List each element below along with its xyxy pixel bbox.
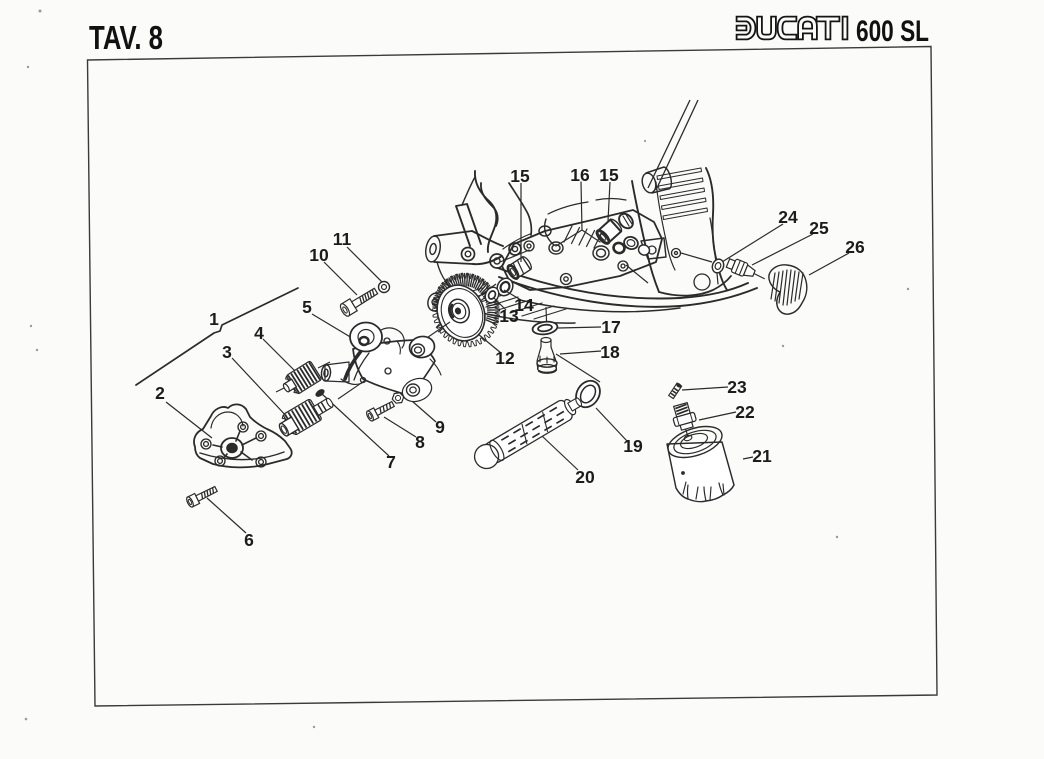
svg-text:TAV. 8: TAV. 8 bbox=[89, 19, 163, 56]
svg-text:25: 25 bbox=[809, 218, 829, 238]
svg-text:10: 10 bbox=[309, 245, 329, 265]
svg-text:2: 2 bbox=[155, 383, 165, 403]
svg-text:17: 17 bbox=[601, 317, 620, 337]
svg-text:23: 23 bbox=[727, 377, 747, 397]
svg-text:21: 21 bbox=[752, 446, 772, 466]
svg-text:15: 15 bbox=[510, 166, 530, 186]
svg-text:26: 26 bbox=[845, 237, 865, 257]
svg-text:12: 12 bbox=[495, 348, 515, 368]
svg-text:19: 19 bbox=[623, 436, 643, 456]
svg-text:18: 18 bbox=[600, 342, 620, 362]
svg-text:16: 16 bbox=[570, 165, 590, 185]
svg-text:1: 1 bbox=[209, 309, 219, 329]
svg-text:7: 7 bbox=[386, 452, 396, 472]
svg-text:15: 15 bbox=[599, 165, 619, 185]
svg-text:8: 8 bbox=[415, 432, 425, 452]
svg-text:20: 20 bbox=[575, 467, 595, 487]
svg-text:14: 14 bbox=[514, 295, 534, 315]
svg-text:22: 22 bbox=[735, 402, 755, 422]
svg-text:3: 3 bbox=[222, 342, 232, 362]
svg-text:5: 5 bbox=[302, 297, 312, 317]
svg-text:24: 24 bbox=[778, 207, 798, 227]
svg-text:600 SL: 600 SL bbox=[856, 15, 929, 48]
svg-text:11: 11 bbox=[333, 229, 352, 249]
svg-text:6: 6 bbox=[244, 530, 254, 550]
svg-text:4: 4 bbox=[254, 323, 264, 343]
svg-text:9: 9 bbox=[435, 417, 445, 437]
